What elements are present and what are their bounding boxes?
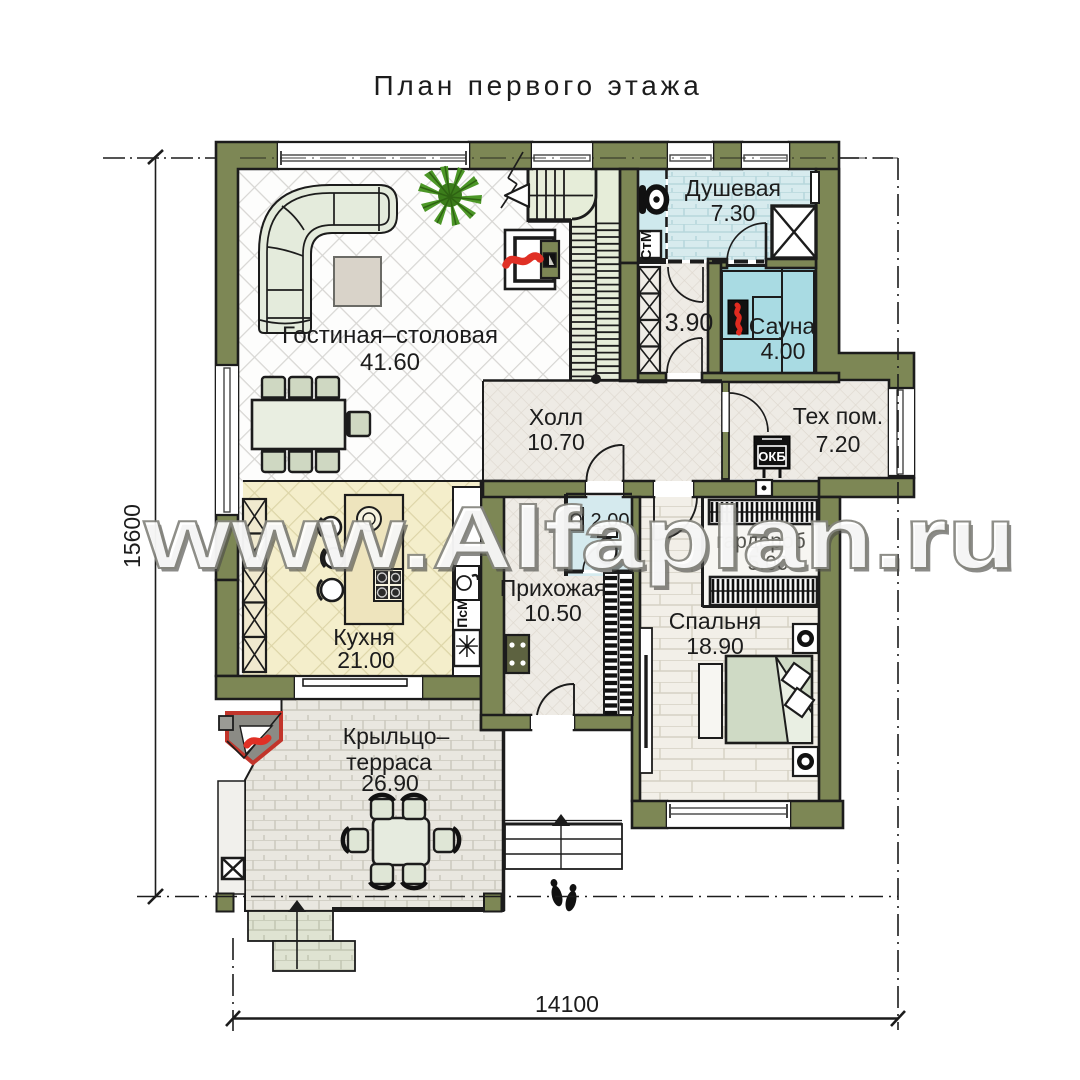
svg-text:www.Alfaplan.ru: www.Alfaplan.ru: [143, 488, 1016, 587]
svg-text:26.90: 26.90: [361, 770, 419, 796]
svg-text:4.00: 4.00: [761, 338, 806, 364]
svg-text:3.90: 3.90: [665, 309, 714, 337]
svg-text:ПсМ: ПсМ: [454, 598, 470, 628]
svg-text:Тех пом.: Тех пом.: [793, 403, 883, 429]
svg-text:Душевая: Душевая: [685, 175, 781, 201]
svg-text:7.20: 7.20: [816, 431, 861, 457]
svg-text:21.00: 21.00: [337, 647, 395, 673]
svg-text:Спальня: Спальня: [669, 608, 761, 634]
svg-text:СтМ: СтМ: [638, 230, 655, 261]
svg-text:10.70: 10.70: [527, 429, 585, 455]
svg-text:10.50: 10.50: [524, 600, 582, 626]
svg-text:Крыльцо–: Крыльцо–: [343, 723, 450, 749]
svg-text:41.60: 41.60: [360, 349, 420, 376]
svg-text:7.30: 7.30: [711, 200, 756, 226]
svg-text:18.90: 18.90: [686, 633, 744, 659]
svg-text:✳: ✳: [454, 631, 479, 664]
svg-text:Гостиная–столовая: Гостиная–столовая: [282, 322, 498, 349]
svg-text:14100: 14100: [535, 991, 599, 1017]
svg-text:Сауна: Сауна: [749, 313, 816, 339]
svg-text:План первого этажа: План первого этажа: [373, 70, 702, 101]
svg-text:15600: 15600: [119, 504, 145, 568]
svg-text:ОКБ: ОКБ: [758, 449, 785, 464]
svg-text:Холл: Холл: [529, 404, 583, 430]
